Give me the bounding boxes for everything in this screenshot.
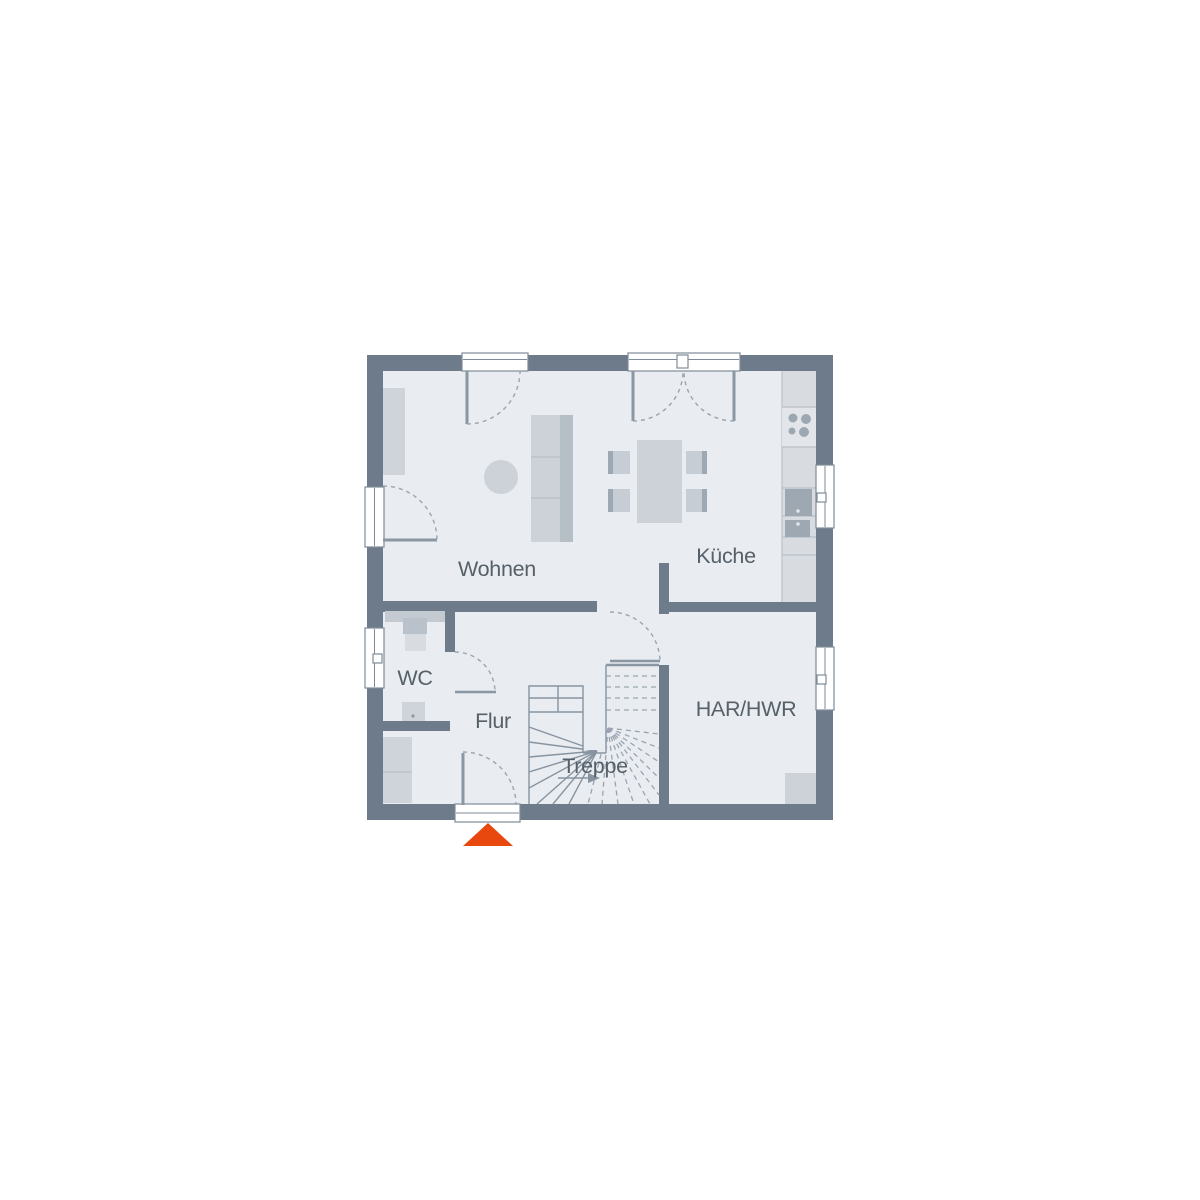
window-handle	[817, 493, 826, 502]
dining-chair	[686, 451, 702, 474]
sofa-backrest	[560, 415, 573, 542]
door-handle	[677, 355, 688, 368]
sink-drain	[796, 509, 799, 512]
window-handle	[373, 654, 382, 663]
interior-wall-wc-bottom	[383, 721, 450, 731]
wc-window	[365, 628, 384, 688]
floor-area	[383, 371, 816, 804]
sofa-seat	[531, 415, 560, 542]
wardrobe	[383, 737, 412, 803]
burner	[789, 414, 798, 423]
floor-plan-page: Wohnen Küche WC Flur Treppe HAR/HWR	[0, 0, 1200, 1200]
dining-chair	[686, 489, 702, 512]
interior-wall-stub	[659, 563, 669, 614]
room-label-wohnen: Wohnen	[458, 557, 536, 581]
dining-table	[637, 440, 682, 523]
room-label-wc: WC	[397, 666, 432, 690]
burner	[801, 414, 811, 424]
dining-chair	[613, 489, 630, 512]
wash-basin	[402, 702, 425, 721]
floor-plan-drawing: Wohnen Küche WC Flur Treppe HAR/HWR	[0, 0, 1200, 1200]
dining-chair-back	[702, 489, 707, 512]
interior-wall-kueche-har	[669, 602, 816, 612]
toilet-tank	[403, 618, 427, 634]
coffee-table	[484, 460, 518, 494]
interior-wall-wc-right	[445, 601, 455, 652]
toilet-bowl	[405, 634, 426, 651]
window-handle	[817, 675, 826, 684]
har-window	[816, 647, 834, 710]
kitchen-counter	[782, 371, 816, 602]
sideboard	[383, 388, 405, 475]
har-storage	[785, 773, 816, 804]
basin-tap	[411, 714, 414, 717]
counter-run	[782, 371, 816, 602]
cooktop	[782, 407, 816, 447]
room-label-treppe: Treppe	[562, 754, 628, 778]
dining-chair-back	[702, 451, 707, 474]
dining-chair-back	[608, 489, 613, 512]
dining-chair-back	[608, 451, 613, 474]
entrance-marker-triangle	[463, 823, 513, 846]
room-label-har-hwr: HAR/HWR	[696, 697, 797, 721]
kitchen-window	[816, 465, 834, 528]
burner	[799, 427, 809, 437]
dining-chair	[613, 451, 630, 474]
burner	[789, 428, 796, 435]
room-label-flur: Flur	[475, 709, 511, 733]
interior-wall-stair-har	[659, 665, 669, 804]
interior-wall-wohnen-flur	[383, 601, 597, 612]
appliance-knob	[796, 522, 799, 525]
room-label-kueche: Küche	[696, 544, 755, 568]
